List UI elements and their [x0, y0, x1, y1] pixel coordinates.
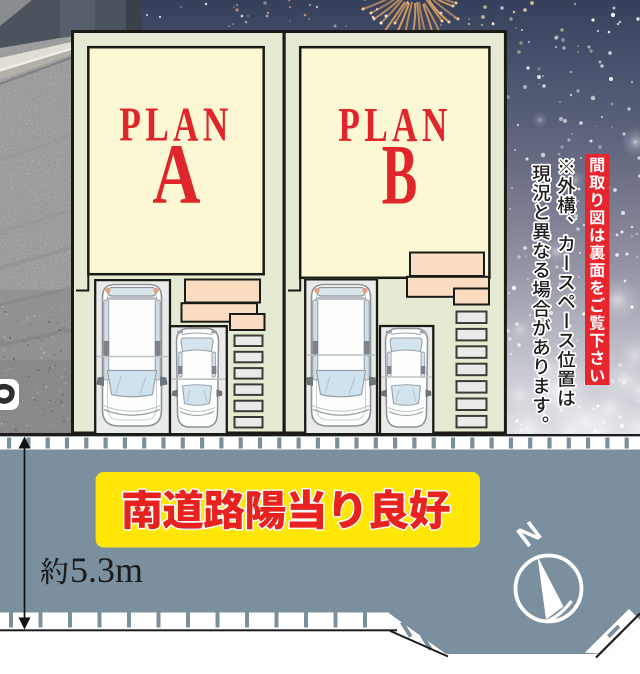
svg-text:B: B: [382, 128, 418, 223]
svg-text:5.3m: 5.3m: [70, 550, 143, 590]
svg-text:A: A: [152, 126, 200, 222]
